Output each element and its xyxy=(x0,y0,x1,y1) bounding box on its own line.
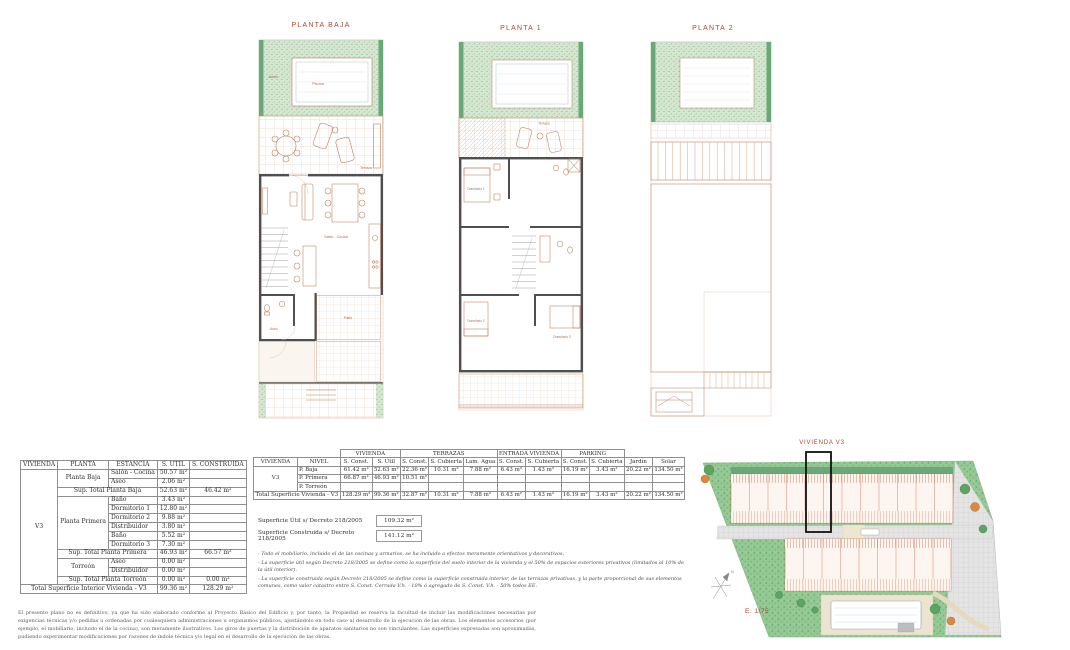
group-header: TERRAZAS xyxy=(400,450,497,458)
col-header: VIVIENDA xyxy=(21,461,58,470)
table-group-header-row: VIVIENDA TERRAZAS ENTRADA VIVIENDA PARKI… xyxy=(254,450,685,458)
estancia-cell: Salón - Cocina xyxy=(109,469,158,478)
table-row: P. Primera 66.87 m²46.93 m² 10.51 m² xyxy=(254,474,685,482)
floorplan-planta-2 xyxy=(648,40,776,418)
estancia-cell: Baño xyxy=(109,496,158,505)
room-label-piscina: Piscina xyxy=(312,82,324,86)
pool xyxy=(680,58,754,108)
decreto-construida-label: Superficie Construida s/ Decreto 218/200… xyxy=(258,530,376,542)
table-row: V3 P. Baja 61.42 m²52.63 m² 22.36 m²10.3… xyxy=(254,466,685,474)
plan-title-planta-1: PLANTA 1 xyxy=(456,25,586,32)
parking-band-top xyxy=(731,511,953,523)
sutil-cell: 3.43 m² xyxy=(157,496,189,505)
vivienda-cell: V3 xyxy=(21,469,58,585)
living-furniture xyxy=(263,184,381,288)
site-scale-label: E: 1/75 xyxy=(745,608,769,615)
table-total-row: Total Superficie Interior Vivienda - V39… xyxy=(21,585,247,594)
col-header: S. CONSTRUIDA xyxy=(190,461,247,470)
room-label-salon: Salón - Cocina xyxy=(324,235,348,239)
group-header: ENTRADA VIVIENDA xyxy=(497,450,561,458)
hedge-left xyxy=(459,42,464,118)
hedge-right xyxy=(767,42,772,122)
site-plan: N xyxy=(693,437,1070,649)
staircase xyxy=(512,236,536,288)
room-label-aseo: Aseo xyxy=(270,327,278,331)
roof-area xyxy=(651,184,771,372)
compass-north-label: N xyxy=(731,569,734,574)
room-label-terraza: Terraza xyxy=(360,166,372,170)
planta-cell: Planta Baja xyxy=(58,469,109,487)
table-total-row: Total Superficie Vivienda - V3 128.29 m²… xyxy=(254,491,685,499)
disclaimer-text: El presente plano no es definitivo, ya q… xyxy=(18,609,536,641)
room-label-patio: Patio xyxy=(344,316,352,320)
rear-terrace xyxy=(459,374,583,408)
torreon-detail xyxy=(651,388,704,416)
room-label-dorm1: Dormitorio 1 xyxy=(467,187,485,191)
table-row: P. Torreón xyxy=(254,483,685,491)
table-header-row: VIVIENDA PLANTA ESTANCIA S. UTIL S. CONS… xyxy=(21,461,247,470)
plan-sheet: PLANTA BAJA PLANTA 1 PLANTA 2 Jardín Pis… xyxy=(0,0,1070,650)
table-superficies-vivienda: VIVIENDA TERRAZAS ENTRADA VIVIENDA PARKI… xyxy=(253,449,685,500)
compass-icon: N xyxy=(711,569,734,599)
group-header: VIVIENDA xyxy=(340,450,400,458)
decreto-construida-row: Superficie Construida s/ Decreto 218/200… xyxy=(258,530,422,542)
hedge-left xyxy=(259,40,264,116)
floorplan-planta-1: Terraza Dormitorio 1 Dormitor xyxy=(456,40,586,412)
col-header: S. UTIL xyxy=(157,461,189,470)
note-line: - La superficie construida según Decreto… xyxy=(258,576,690,591)
table-superficies-interiores: VIVIENDA PLANTA ESTANCIA S. UTIL S. CONS… xyxy=(20,460,247,594)
room-label-dorm2: Dormitorio 2 xyxy=(467,319,485,323)
plan-title-planta-baja: PLANTA BAJA xyxy=(256,22,386,29)
table-header-row: VIVIENDANIVEL S. Const.S. Útil S. Const.… xyxy=(254,458,685,466)
room-label-jardin: Jardín xyxy=(268,75,278,79)
col-header: ESTANCIA xyxy=(109,461,158,470)
room-label-dorm3: Dormitorio 3 xyxy=(553,335,571,339)
hedge-band-top xyxy=(731,467,953,474)
decreto-util-label: Superficie Útil s/ Decreto 218/2005 xyxy=(258,518,376,524)
rear-band xyxy=(704,372,771,388)
note-line: - Todo el mobiliario, incluido el de las… xyxy=(258,551,690,559)
vivienda-cell: V3 xyxy=(254,466,298,491)
decreto-construida-value: 141.12 m² xyxy=(376,530,422,542)
note-line: - La superficie útil según Decreto 218/2… xyxy=(258,560,690,575)
planta-cell: Planta Primera xyxy=(58,496,109,549)
hedge-left xyxy=(651,42,656,122)
staircase xyxy=(262,228,289,288)
hedge-right xyxy=(579,42,584,118)
notes-block: - Todo el mobiliario, incluido el de las… xyxy=(258,551,690,592)
hedge-right xyxy=(379,40,384,116)
bedroom-furniture xyxy=(464,159,580,336)
table-row: V3 Planta Baja Salón - Cocina50.57 m² xyxy=(21,469,247,478)
sutil-cell: 50.57 m² xyxy=(157,469,189,478)
room-label-terraza: Terraza xyxy=(538,122,549,126)
floorplan-planta-baja: Jardín Piscina Terraza xyxy=(256,38,386,420)
planta-cell: Torreón xyxy=(58,558,109,576)
sutil-cell: 2.06 m² xyxy=(157,478,189,487)
estancia-cell: Aseo xyxy=(109,478,158,487)
plan-title-planta-2: PLANTA 2 xyxy=(648,25,778,32)
decreto-util-value: 109.32 m² xyxy=(376,515,422,527)
decreto-summary: Superficie Útil s/ Decreto 218/2005 109.… xyxy=(258,515,422,545)
decreto-util-row: Superficie Útil s/ Decreto 218/2005 109.… xyxy=(258,515,422,527)
col-header: PLANTA xyxy=(58,461,109,470)
aseo-fixtures xyxy=(264,301,295,340)
parking-band-bottom xyxy=(785,579,951,591)
group-header: PARKING xyxy=(561,450,624,458)
pergola xyxy=(651,142,771,180)
